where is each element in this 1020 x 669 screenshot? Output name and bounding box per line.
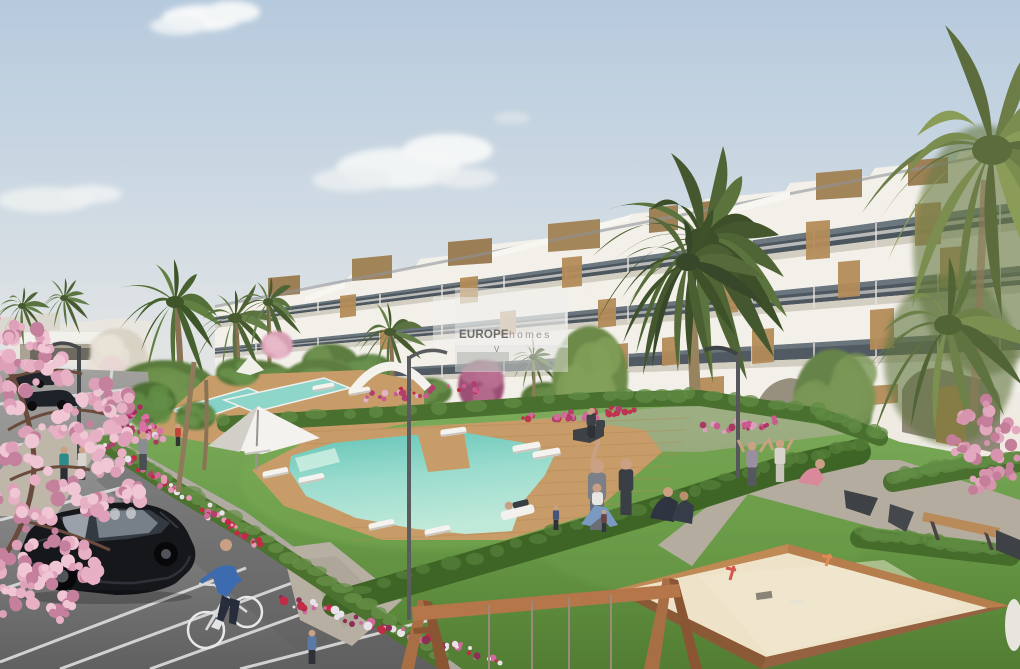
svg-text:EUROPE: EUROPE (459, 329, 509, 341)
svg-text:homes: homes (509, 329, 552, 341)
svg-text:V: V (494, 345, 500, 354)
